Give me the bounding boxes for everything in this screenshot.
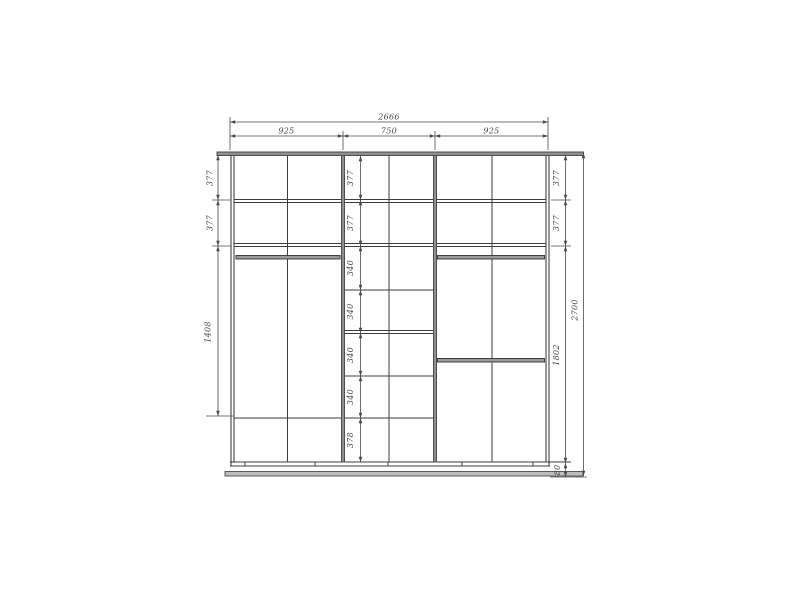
arrowhead [359, 285, 363, 290]
dim-label-mid-340c: 340 [346, 347, 355, 363]
dim-label-mid-340b: 340 [346, 303, 355, 319]
arrowhead [338, 134, 343, 138]
arrowhead [359, 371, 363, 376]
arrowhead [564, 241, 568, 246]
hanging-rod-left [236, 256, 340, 260]
plinth-band [225, 472, 583, 477]
drawing-svg: 2666 925 750 925 377 377 1408 377 377 34… [0, 0, 800, 600]
arrowhead [359, 457, 363, 462]
dim-label-mid-377b: 377 [346, 214, 355, 231]
cabinet-structure [217, 152, 584, 476]
dimension-lines [206, 117, 587, 477]
dimension-arrowheads [216, 120, 585, 477]
arrowhead [564, 246, 568, 251]
arrowhead [359, 413, 363, 418]
arrowhead [543, 134, 548, 138]
arrowhead [564, 463, 568, 468]
arrowhead [230, 134, 235, 138]
dim-label-left-377b: 377 [206, 214, 215, 231]
arrowhead [564, 200, 568, 205]
arrowhead [435, 134, 440, 138]
dim-label-mid-340d: 340 [346, 389, 355, 405]
arrowhead [359, 290, 363, 295]
partition-middle-right [434, 156, 437, 463]
dim-label-mid-340a: 340 [346, 260, 355, 276]
dimension-labels: 2666 925 750 925 377 377 1408 377 377 34… [204, 113, 580, 476]
hanging-rod-right-upper [438, 256, 545, 260]
dim-label-section-left: 925 [278, 127, 294, 136]
arrowhead [216, 411, 220, 416]
arrowhead [543, 120, 548, 124]
arrowhead [230, 120, 235, 124]
dim-label-section-right: 925 [483, 127, 499, 136]
dim-label-left-1408: 1408 [204, 321, 213, 343]
arrowhead [216, 241, 220, 246]
arrowhead [216, 195, 220, 200]
dim-label-right-377a: 377 [552, 169, 561, 186]
dim-label-left-377a: 377 [206, 169, 215, 186]
arrowhead [359, 156, 363, 161]
arrowhead [430, 134, 435, 138]
dim-label-section-middle: 750 [381, 127, 397, 136]
arrowhead [359, 418, 363, 423]
partition-left-middle [342, 156, 345, 463]
hanging-rod-right-lower [438, 359, 545, 363]
dim-label-right-1802: 1802 [552, 344, 561, 366]
arrowhead [216, 246, 220, 251]
dim-label-mid-378: 378 [346, 432, 355, 448]
dim-label-mid-377a: 377 [346, 169, 355, 186]
dim-label-total-width: 2666 [377, 113, 400, 122]
top-panel [217, 152, 584, 156]
arrowhead [216, 200, 220, 205]
arrowhead [343, 134, 348, 138]
arrowhead [359, 376, 363, 381]
dim-label-total-height: 2700 [571, 299, 580, 322]
dim-label-right-80: 80 [553, 465, 562, 476]
dim-label-right-377b: 377 [552, 214, 561, 231]
arrowhead [564, 195, 568, 200]
wardrobe-dimension-drawing: 2666 925 750 925 377 377 1408 377 377 34… [0, 0, 800, 600]
